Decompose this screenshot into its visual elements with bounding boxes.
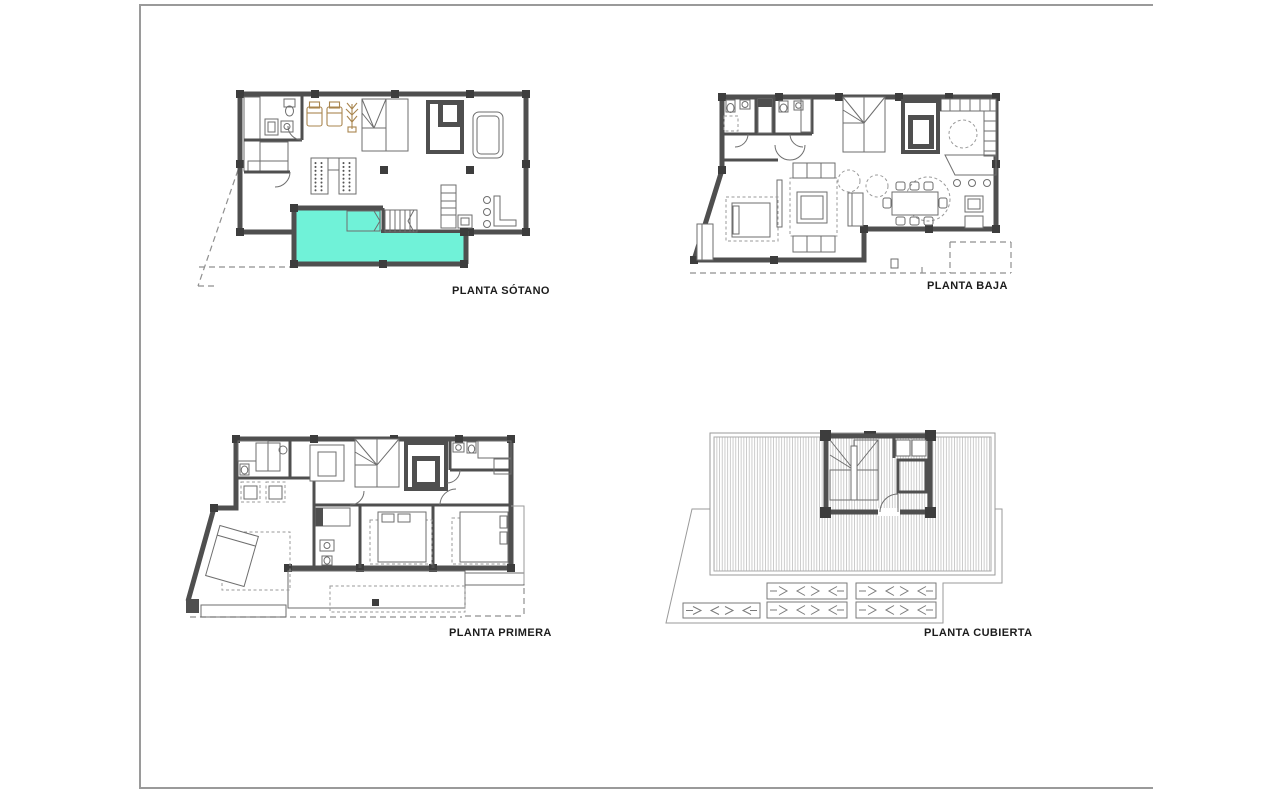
bathroom-topright [447, 441, 511, 483]
bathrooms-top [722, 97, 812, 147]
fireplace-room [903, 101, 938, 152]
structural-columns [380, 166, 474, 174]
plan-label-baja: PLANTA BAJA [927, 280, 1008, 292]
utility-room [244, 96, 302, 187]
staircase [843, 97, 885, 152]
gym-racks [311, 158, 356, 194]
living-room [777, 163, 888, 252]
master-bedroom [206, 525, 290, 590]
bar-area [441, 185, 516, 228]
dressing-chairs [241, 482, 285, 502]
storage-room [428, 100, 462, 152]
plan-label-primera: PLANTA PRIMERA [449, 627, 552, 639]
bathroom-middle [316, 491, 364, 565]
hall-doors [722, 145, 805, 160]
bedroom-3 [440, 489, 508, 564]
bathroom-topleft [238, 441, 287, 475]
kitchen [940, 97, 996, 156]
outdoor-kitchen [954, 180, 991, 229]
floor-plan-cubierta [655, 430, 1015, 635]
plot-boundary-dashed [198, 170, 292, 286]
sun-loungers [307, 102, 342, 126]
terrace-steps [945, 155, 996, 175]
drawing-sheet: { "sheet": { "type": "architectural floo… [0, 0, 1280, 800]
games-table [473, 112, 503, 158]
shaft-room [406, 443, 446, 489]
floor-plan-primera [185, 430, 540, 635]
bedroom-2 [370, 512, 432, 564]
plan-label-sotano: PLANTA SÓTANO [452, 285, 550, 297]
pergola-slats [683, 583, 936, 618]
plan-label-cubierta: PLANTA CUBIERTA [924, 627, 1032, 639]
staircase [355, 439, 399, 487]
plant-icon [346, 103, 358, 132]
laundry-room [310, 445, 344, 481]
dining-area [883, 177, 950, 225]
plot-boundary-dashed [190, 588, 524, 617]
staircase [362, 99, 408, 151]
floor-plan-baja [660, 85, 1020, 285]
floor-plan-sotano [185, 85, 540, 300]
